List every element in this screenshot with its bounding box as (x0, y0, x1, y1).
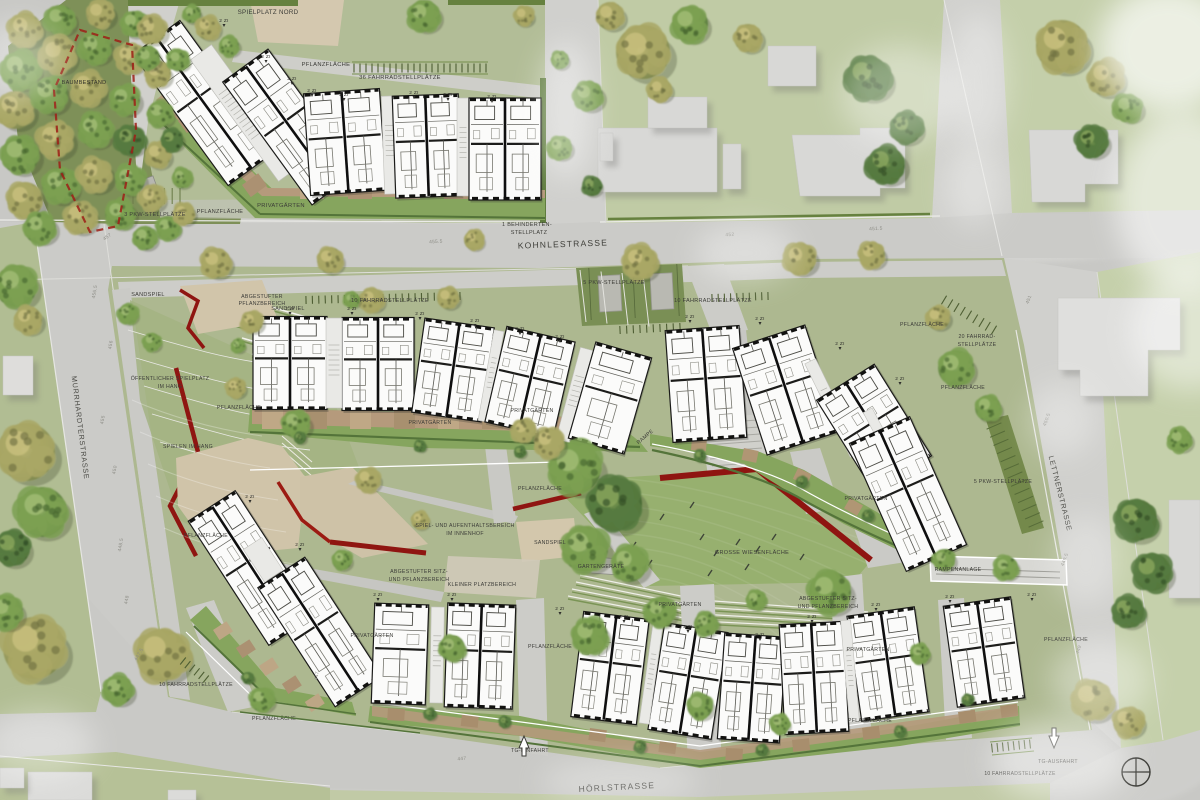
svg-text:2 ZI: 2 ZI (807, 614, 816, 620)
svg-text:2 ZI: 2 ZI (261, 54, 270, 60)
svg-text:10 FAHRRADSTELLPLÄTZE: 10 FAHRRADSTELLPLÄTZE (351, 297, 429, 304)
svg-text:ÖFFENTLICHER SPIELPLATZ: ÖFFENTLICHER SPIELPLATZ (131, 375, 210, 382)
svg-text:STELLPLATZ: STELLPLATZ (511, 230, 548, 236)
svg-text:SPIELEN IM HANG: SPIELEN IM HANG (163, 444, 213, 450)
svg-text:PRIVATGÄRTEN: PRIVATGÄRTEN (257, 202, 305, 209)
svg-text:PFLANZFLÄCHE: PFLANZFLÄCHE (217, 404, 261, 411)
svg-text:2 ZI: 2 ZI (515, 326, 524, 332)
svg-text:GROSSE WIESENFLÄCHE: GROSSE WIESENFLÄCHE (715, 549, 789, 556)
svg-text:2 ZI: 2 ZI (245, 494, 254, 500)
svg-text:UND PFLANZBEREICH: UND PFLANZBEREICH (798, 604, 859, 610)
svg-text:PRIVATGÄRTEN: PRIVATGÄRTEN (408, 419, 451, 426)
svg-text:2 ZI: 2 ZI (895, 376, 904, 382)
svg-text:PFLANZFLÄCHE: PFLANZFLÄCHE (900, 321, 944, 328)
svg-text:PRIVATGÄRTEN: PRIVATGÄRTEN (510, 407, 553, 414)
svg-text:2 ZI: 2 ZI (295, 542, 304, 548)
svg-text:IM HANG: IM HANG (158, 384, 182, 390)
svg-text:2 ZI: 2 ZI (555, 334, 564, 340)
svg-text:PRIVATGÄRTEN: PRIVATGÄRTEN (846, 646, 889, 653)
svg-text:2 ZI: 2 ZI (1027, 592, 1036, 598)
svg-text:PRIVATGÄRTEN: PRIVATGÄRTEN (844, 495, 887, 502)
svg-text:2 ZI: 2 ZI (470, 318, 479, 324)
svg-text:SANDSPIEL: SANDSPIEL (131, 292, 165, 298)
svg-text:447: 447 (457, 756, 466, 763)
svg-text:2 ZI: 2 ZI (287, 76, 296, 82)
svg-text:2 ZI: 2 ZI (871, 602, 880, 608)
svg-text:SPIEL- UND AUFENTHALTSBEREICH: SPIEL- UND AUFENTHALTSBEREICH (415, 523, 514, 529)
svg-text:2 ZI: 2 ZI (285, 306, 294, 312)
svg-text:5 PKW-STELLPLÄTZE: 5 PKW-STELLPLÄTZE (974, 478, 1033, 485)
svg-text:UND PFLANZBEREICH: UND PFLANZBEREICH (389, 577, 450, 583)
svg-text:ABGESTUFTER: ABGESTUFTER (241, 294, 283, 300)
svg-text:STELLPLÄTZE: STELLPLÄTZE (958, 341, 997, 348)
svg-text:10 FAHRRADSTELLPLÄTZE: 10 FAHRRADSTELLPLÄTZE (674, 297, 752, 304)
svg-text:TG-EINFAHRT: TG-EINFAHRT (511, 748, 549, 754)
svg-text:2 ZI: 2 ZI (219, 18, 228, 24)
svg-text:BAUMBESTAND: BAUMBESTAND (62, 80, 107, 86)
svg-text:2 ZI: 2 ZI (373, 592, 382, 598)
svg-text:2 ZI: 2 ZI (755, 632, 764, 638)
svg-text:5 PKW-STELLPLÄTZE: 5 PKW-STELLPLÄTZE (583, 279, 645, 286)
svg-text:20 FAHRRAD-: 20 FAHRRAD- (958, 334, 995, 340)
svg-text:ABGESTUFTER SITZ-: ABGESTUFTER SITZ- (799, 596, 857, 602)
svg-text:PFLANZFLÄCHE: PFLANZFLÄCHE (1044, 636, 1088, 643)
svg-text:2 ZI: 2 ZI (685, 314, 694, 320)
svg-text:PFLANZFLÄCHE: PFLANZFLÄCHE (848, 717, 892, 724)
svg-text:3 PKW-STELLPLÄTZE: 3 PKW-STELLPLÄTZE (124, 211, 186, 218)
svg-text:2 ZI: 2 ZI (945, 594, 954, 600)
svg-text:ABGESTUFTER SITZ-: ABGESTUFTER SITZ- (390, 569, 448, 575)
svg-text:2 ZI: 2 ZI (339, 92, 348, 98)
svg-text:2 ZI: 2 ZI (443, 92, 452, 98)
svg-text:36 FAHRRADSTELLPLÄTZE: 36 FAHRRADSTELLPLÄTZE (359, 74, 441, 81)
svg-text:2 ZI: 2 ZI (755, 316, 764, 322)
svg-text:2 ZI: 2 ZI (447, 592, 456, 598)
svg-text:451.5: 451.5 (869, 226, 883, 233)
svg-text:PFLANZFLÄCHE: PFLANZFLÄCHE (941, 384, 985, 391)
svg-text:1 BEHINDERTEN-: 1 BEHINDERTEN- (502, 222, 552, 228)
svg-text:2 ZI: 2 ZI (835, 341, 844, 347)
svg-text:IM INNENHOF: IM INNENHOF (446, 531, 484, 537)
svg-text:2 ZI: 2 ZI (307, 88, 316, 94)
svg-text:PFLANZFLÄCHE: PFLANZFLÄCHE (197, 208, 243, 215)
svg-text:PFLANZFLÄCHE: PFLANZFLÄCHE (184, 532, 228, 539)
svg-text:2 ZI: 2 ZI (683, 624, 692, 630)
svg-text:2 ZI: 2 ZI (409, 90, 418, 96)
svg-text:10 FAHRRADSTELLPLÄTZE: 10 FAHRRADSTELLPLÄTZE (159, 681, 233, 688)
svg-text:PRIVATGÄRTEN: PRIVATGÄRTEN (350, 632, 393, 639)
svg-text:SPIELPLATZ NORD: SPIELPLATZ NORD (238, 9, 299, 16)
svg-text:PRIVATGÄRTEN: PRIVATGÄRTEN (658, 601, 701, 608)
svg-text:PFLANZFLÄCHE: PFLANZFLÄCHE (518, 485, 562, 492)
svg-text:RAMPENANLAGE: RAMPENANLAGE (935, 567, 982, 573)
svg-text:455.5: 455.5 (429, 239, 443, 246)
svg-text:GARTENGERÄTE: GARTENGERÄTE (578, 563, 625, 570)
svg-text:PFLANZFLÄCHE: PFLANZFLÄCHE (528, 643, 572, 650)
svg-text:KLEINER PLATZBEREICH: KLEINER PLATZBEREICH (448, 582, 516, 588)
svg-text:2 ZI: 2 ZI (347, 306, 356, 312)
svg-text:2 ZI: 2 ZI (619, 614, 628, 620)
svg-text:2 ZI: 2 ZI (487, 94, 496, 100)
svg-text:PFLANZFLÄCHE: PFLANZFLÄCHE (302, 61, 351, 68)
svg-text:SANDSPIEL: SANDSPIEL (534, 540, 566, 546)
svg-text:2 ZI: 2 ZI (415, 311, 424, 317)
svg-text:2 ZI: 2 ZI (555, 606, 564, 612)
